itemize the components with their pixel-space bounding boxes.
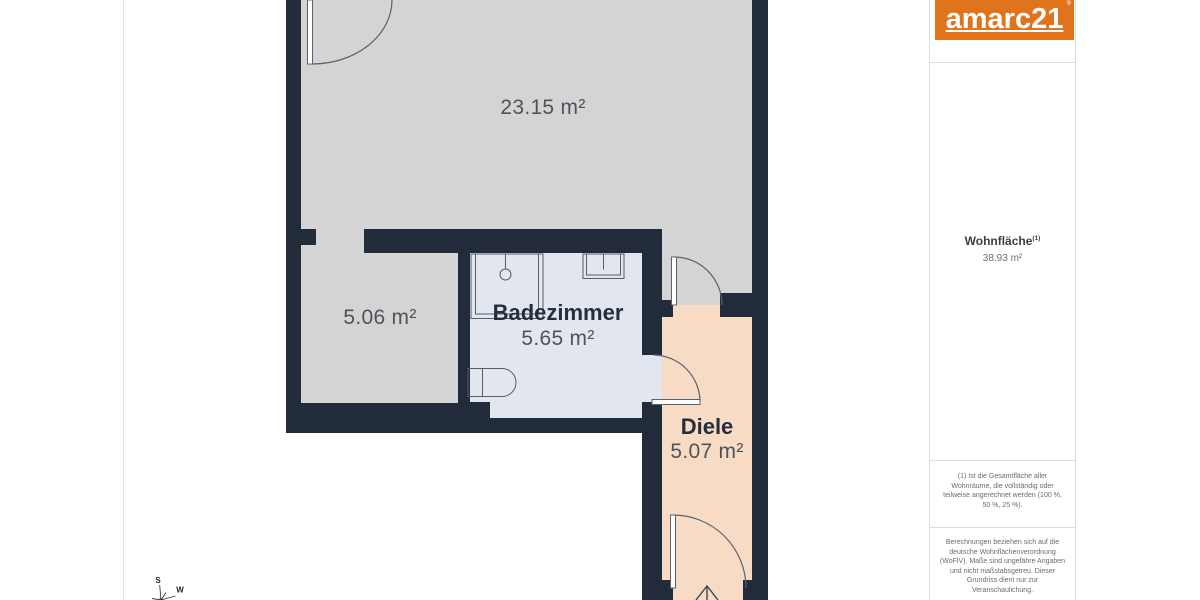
disclaimer-line: Grundriss dient nur zur: [938, 576, 1067, 586]
wall: [286, 0, 301, 433]
wall: [642, 402, 662, 600]
wall: [286, 403, 489, 433]
registered-trademark-icon: ®: [1067, 1, 1071, 7]
total-area-label: Wohnfläche: [965, 234, 1033, 248]
wall: [720, 293, 752, 317]
total-area-block: Wohnfläche(1) 38.93 m²: [930, 234, 1075, 264]
room-hallway-area-label: 5.07 m²: [670, 440, 743, 464]
wall: [662, 580, 673, 600]
footnote-text: (1) Ist die Gesamtfläche aller Wohnräume…: [938, 472, 1067, 510]
footnote-ref-superscript: (1): [1032, 235, 1040, 242]
room-side-area-label: 5.06 m²: [343, 306, 416, 330]
wall: [489, 418, 662, 433]
wall: [743, 580, 752, 600]
page-edge-line: [123, 0, 124, 600]
sidebar: amarc21 ® Wohnfläche(1) 38.93 m² (1) Ist…: [929, 0, 1076, 600]
compass-south-label: S: [155, 576, 161, 585]
disclaimer-line: deutsche Wohnflächenverordnung: [938, 548, 1067, 558]
room-bathroom-area-label: 5.65 m²: [521, 327, 594, 351]
compass-west-label: W: [176, 586, 184, 595]
disclaimer-line: Berechnungen beziehen sich auf die: [938, 538, 1067, 548]
total-area-heading: Wohnfläche(1): [930, 234, 1075, 248]
wall: [301, 229, 316, 245]
disclaimer-text: Berechnungen beziehen sich auf die deuts…: [938, 538, 1067, 595]
footnote-line: teilweise angerechnet werden (100 %,: [938, 491, 1067, 501]
wall: [470, 402, 490, 418]
footnote-line: Wohnräume, die vollständig oder: [938, 482, 1067, 492]
bathroom-doorway-floor: [642, 355, 662, 402]
wall: [642, 253, 662, 355]
disclaimer-line: (WoFlV). Maße sind ungefähre Angaben: [938, 557, 1067, 567]
compass-icon: S W: [149, 576, 185, 600]
wall: [752, 0, 768, 600]
wall: [458, 253, 470, 403]
divider: [930, 62, 1075, 63]
room-bathroom-name-label: Badezimmer: [493, 300, 624, 326]
wall: [364, 229, 662, 253]
total-area-value: 38.93 m²: [930, 253, 1075, 264]
room-living-area-label: 23.15 m²: [500, 96, 585, 120]
room-hallway-name-label: Diele: [681, 414, 734, 440]
disclaimer-line: Veranschaulichung.: [938, 586, 1067, 596]
divider: [930, 460, 1075, 461]
disclaimer-line: und nicht maßstabsgetreu. Dieser: [938, 567, 1067, 577]
footnote-line: 50 %, 25 %).: [938, 501, 1067, 511]
wall: [662, 300, 673, 317]
amarc21-logo: amarc21 ®: [935, 0, 1074, 40]
logo-text: amarc21: [946, 3, 1064, 35]
footnote-line: (1) Ist die Gesamtfläche aller: [938, 472, 1067, 482]
divider: [930, 527, 1075, 528]
